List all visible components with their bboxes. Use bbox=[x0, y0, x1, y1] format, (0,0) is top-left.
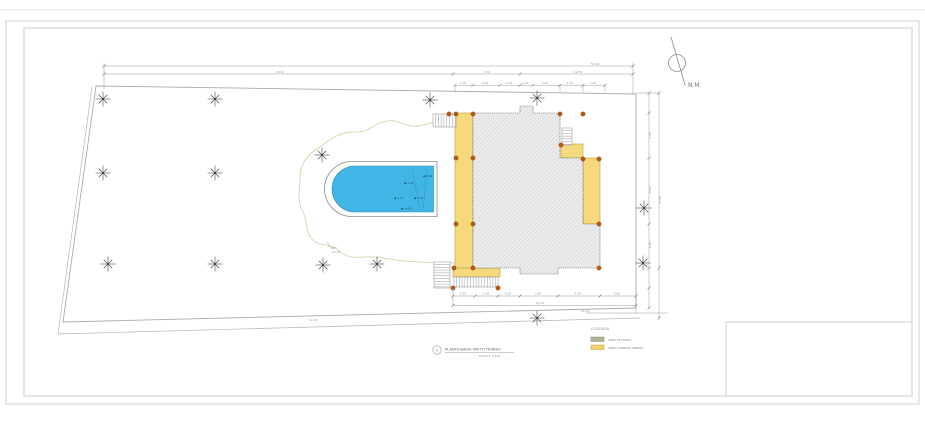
dimension-label: 3.60 bbox=[614, 292, 621, 296]
column-dot bbox=[471, 112, 475, 116]
dimension-label: 21.80 bbox=[658, 196, 662, 205]
dimension-label: 2.25 bbox=[506, 81, 513, 85]
title-scale: ESCALA 1/100 bbox=[479, 354, 500, 358]
dimension-label: 2.20 bbox=[505, 292, 512, 296]
covered-area-bottom bbox=[453, 268, 500, 277]
column-dot bbox=[454, 156, 458, 160]
building bbox=[433, 106, 601, 290]
dimension-label: 6.60 bbox=[648, 187, 652, 194]
dimension-label: 2.20 bbox=[460, 292, 467, 296]
legend-label-closed: AREA FECHADA bbox=[608, 338, 632, 342]
dimension-label: 2.30 bbox=[483, 292, 490, 296]
column-dot bbox=[581, 157, 585, 161]
column-dot bbox=[597, 157, 601, 161]
tree-symbol bbox=[530, 311, 545, 326]
stair-bottom-wide bbox=[454, 277, 498, 287]
dimension-label: 2.55 bbox=[567, 81, 574, 85]
column-dot bbox=[447, 112, 451, 116]
dimension-label: 12.55 bbox=[574, 70, 583, 74]
tree-symbol bbox=[101, 257, 116, 272]
tree-trunk bbox=[429, 99, 431, 101]
dimension-label: 2.00 bbox=[460, 81, 467, 85]
dimension-label: 59.60 bbox=[591, 62, 600, 66]
column-dot bbox=[496, 286, 500, 290]
title-number: 1 bbox=[436, 348, 439, 353]
pool-depth-label: -0.60 bbox=[426, 174, 433, 178]
covered-area-left-band bbox=[455, 113, 473, 268]
dimension-label: 39.10 bbox=[276, 70, 285, 74]
tree-trunk bbox=[536, 317, 538, 319]
tree-symbol bbox=[96, 92, 111, 107]
tree-trunk bbox=[214, 172, 216, 174]
dimension-label: 39.25 bbox=[309, 318, 318, 322]
title-text: PLANTA BAIXA PAVTO TÉRREO bbox=[445, 347, 501, 352]
legend-swatch-closed bbox=[591, 337, 604, 342]
note-line2: +0.00 bbox=[331, 250, 340, 254]
swimming-pool: -1.40-0.60-1.70-1.60+0.00 bbox=[324, 162, 437, 217]
drawing-title: 1 PLANTA BAIXA PAVTO TÉRREO ESCALA 1/100 bbox=[433, 346, 514, 358]
pool-depth-label: -1.40 bbox=[407, 181, 414, 185]
column-dot bbox=[581, 112, 585, 116]
tree-symbol bbox=[208, 92, 223, 107]
dimension-label: 4.50 bbox=[648, 132, 652, 139]
dimension-label: 3.00 bbox=[482, 81, 489, 85]
column-dot bbox=[559, 143, 563, 147]
tree-symbol bbox=[315, 148, 330, 163]
legend-label-covered: AREA COBERTA ABERTA bbox=[608, 346, 644, 350]
tree-symbol bbox=[208, 257, 223, 272]
enclosed-area-hatched bbox=[473, 106, 600, 274]
legend-swatch-covered bbox=[591, 345, 604, 350]
tree-symbol bbox=[208, 166, 223, 181]
covered-area-right-band bbox=[583, 158, 600, 224]
dimension-label: 4.40 bbox=[648, 242, 652, 249]
stair-internal bbox=[562, 128, 572, 145]
tree-trunk bbox=[322, 264, 324, 266]
column-dot bbox=[454, 222, 458, 226]
tree-symbol bbox=[96, 166, 111, 181]
north-arrow: N.M. bbox=[669, 37, 702, 89]
stair-bottom-left bbox=[434, 262, 450, 288]
legend-title: LEGENDA bbox=[591, 327, 610, 331]
tree-symbol bbox=[636, 256, 651, 271]
tree-trunk bbox=[321, 154, 323, 156]
north-needle bbox=[671, 37, 685, 85]
tree-symbol bbox=[370, 257, 385, 272]
column-dot bbox=[454, 112, 458, 116]
dimension-label: 3.00 bbox=[542, 81, 549, 85]
tree-trunk bbox=[214, 98, 216, 100]
column-dot bbox=[452, 266, 456, 270]
covered-area-mid-right bbox=[561, 144, 583, 158]
drawing-sheet: -1.40-0.60-1.70-1.60+0.00 59.6039.107.40… bbox=[0, 0, 925, 425]
tree-trunk bbox=[214, 263, 216, 265]
dimension-label: 23.28 bbox=[581, 309, 590, 313]
tree-trunk bbox=[102, 172, 104, 174]
column-dot bbox=[471, 156, 475, 160]
dimension-label: 4.20 bbox=[575, 292, 582, 296]
tree-trunk bbox=[376, 263, 378, 265]
note-leader bbox=[327, 242, 330, 247]
tree-trunk bbox=[107, 263, 109, 265]
pool-depth-label: +0.00 bbox=[404, 207, 412, 211]
dimension-label: 2.45 bbox=[590, 81, 597, 85]
pool-depth-label: -1.60 bbox=[417, 196, 424, 200]
tree-trunk bbox=[642, 262, 644, 264]
column-dot bbox=[597, 222, 601, 226]
tree-trunk bbox=[536, 97, 538, 99]
tree-symbol bbox=[316, 258, 331, 273]
column-dot bbox=[471, 222, 475, 226]
dimension-label: 3.80 bbox=[535, 292, 542, 296]
pool-depth-label: -1.70 bbox=[397, 196, 404, 200]
column-dot bbox=[471, 266, 475, 270]
dimension-label: 1.45 bbox=[522, 81, 529, 85]
column-dot bbox=[597, 266, 601, 270]
dimension-label: 7.40 bbox=[484, 70, 491, 74]
legend: LEGENDA AREA FECHADA AREA COBERTA ABERTA bbox=[591, 327, 644, 350]
site-plan-svg: -1.40-0.60-1.70-1.60+0.00 59.6039.107.40… bbox=[0, 0, 925, 425]
pool-water bbox=[332, 166, 433, 212]
tree-symbol bbox=[423, 93, 438, 108]
landscape-note: NPT +0.00 bbox=[327, 242, 340, 254]
tree-trunk bbox=[102, 98, 104, 100]
tree-trunk bbox=[643, 207, 645, 209]
dimension-label: 18.30 bbox=[536, 301, 545, 305]
stair-top-left bbox=[433, 114, 456, 127]
boundary-offset-left bbox=[58, 87, 92, 334]
north-label: N.M. bbox=[688, 82, 702, 89]
column-dot bbox=[558, 112, 562, 116]
